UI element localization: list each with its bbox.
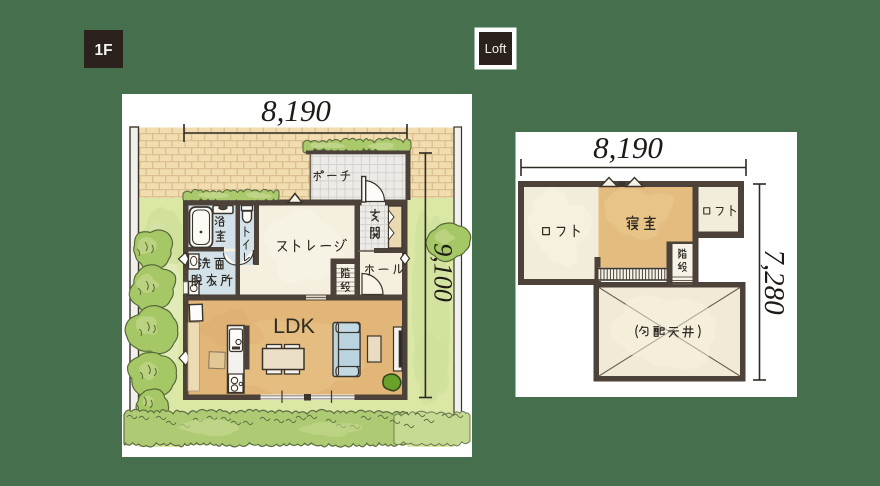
svg-text:9,100: 9,100 <box>429 243 458 302</box>
svg-text:7,280: 7,280 <box>758 249 790 315</box>
svg-text:8,190: 8,190 <box>261 93 331 128</box>
svg-text:LDK: LDK <box>273 314 315 338</box>
svg-text:8,190: 8,190 <box>593 130 663 165</box>
svg-text:1F: 1F <box>94 42 112 59</box>
svg-text:Loft: Loft <box>485 41 507 56</box>
